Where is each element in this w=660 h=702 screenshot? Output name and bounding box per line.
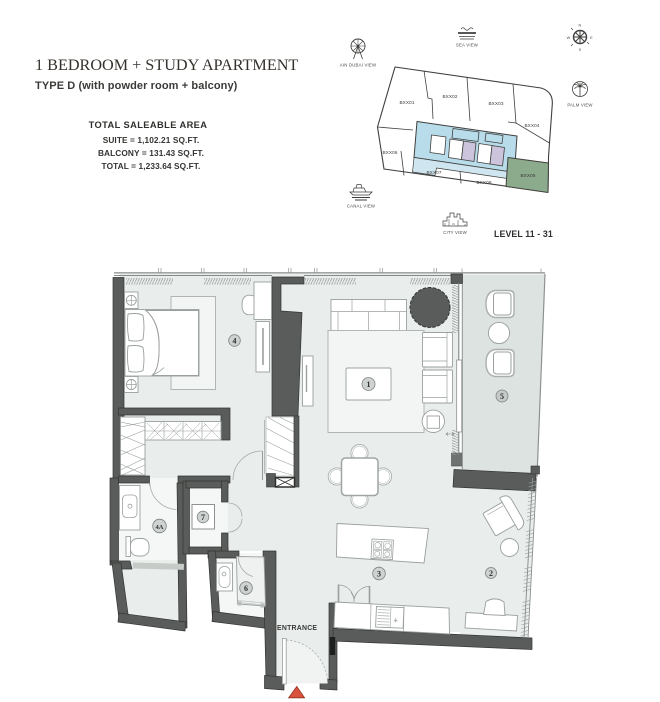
svg-text:BXX03: BXX03 — [488, 101, 503, 106]
svg-text:7: 7 — [201, 513, 205, 522]
svg-text:6: 6 — [244, 584, 248, 593]
svg-text:S: S — [579, 48, 582, 52]
svg-text:BXX02: BXX02 — [442, 94, 457, 99]
svg-text:N: N — [579, 24, 582, 28]
svg-text:TOTAL SALEABLE AREA: TOTAL SALEABLE AREA — [89, 120, 208, 130]
svg-text:CANAL VIEW: CANAL VIEW — [347, 204, 376, 209]
svg-text:TOTAL = 1,233.64 SQ.FT.: TOTAL = 1,233.64 SQ.FT. — [102, 161, 201, 171]
svg-text:BXX06: BXX06 — [382, 150, 397, 155]
svg-text:AIN DUBAI VIEW: AIN DUBAI VIEW — [340, 63, 377, 68]
svg-text:BXX07: BXX07 — [426, 170, 441, 175]
svg-text:1: 1 — [367, 380, 371, 389]
svg-text:W: W — [567, 36, 571, 40]
svg-text:ENTRANCE: ENTRANCE — [277, 625, 317, 632]
svg-text:SUITE = 1,102.21 SQ.FT.: SUITE = 1,102.21 SQ.FT. — [103, 135, 200, 145]
svg-text:3: 3 — [377, 570, 381, 579]
svg-text:4A: 4A — [156, 524, 164, 531]
svg-text:TYPE D (with powder room + bal: TYPE D (with powder room + balcony) — [35, 80, 238, 92]
svg-text:4: 4 — [233, 337, 237, 346]
svg-text:SEA VIEW: SEA VIEW — [456, 43, 479, 48]
svg-text:LEVEL 11 - 31: LEVEL 11 - 31 — [494, 229, 553, 239]
svg-text:E: E — [590, 36, 593, 40]
svg-text:2: 2 — [489, 569, 493, 578]
svg-text:BXX01: BXX01 — [399, 100, 414, 105]
svg-text:1 BEDROOM + STUDY APARTMENT: 1 BEDROOM + STUDY APARTMENT — [35, 56, 298, 74]
svg-text:CITY VIEW: CITY VIEW — [443, 230, 467, 235]
svg-text:BXX04: BXX04 — [524, 123, 539, 128]
svg-text:BXX08: BXX08 — [476, 180, 491, 185]
svg-text:BALCONY = 131.43 SQ.FT.: BALCONY = 131.43 SQ.FT. — [98, 148, 204, 158]
svg-text:BXX05: BXX05 — [520, 173, 535, 178]
svg-text:5: 5 — [500, 392, 504, 401]
svg-text:PALM VIEW: PALM VIEW — [567, 103, 593, 108]
